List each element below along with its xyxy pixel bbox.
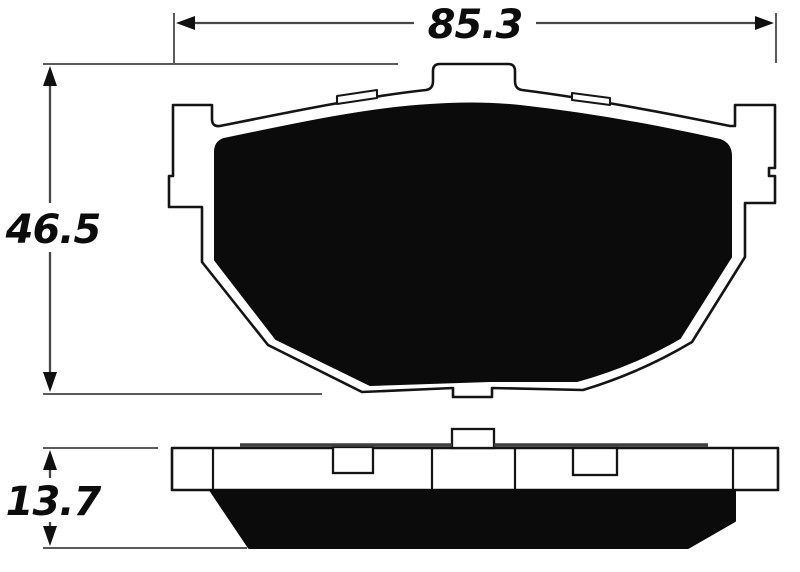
brake-pad-front-view — [169, 64, 775, 397]
width-dimension-label: 85.3 — [428, 2, 523, 48]
brake-pad-drawing: 85.3 46.5 13.7 — [0, 0, 800, 572]
brake-pad-edge-view — [172, 429, 778, 548]
edge-center-tab — [452, 429, 494, 448]
edge-backing-plate — [172, 448, 778, 490]
friction-material-front — [215, 104, 731, 385]
dimension-width: 85.3 — [174, 2, 776, 64]
thickness-dimension-label: 13.7 — [6, 479, 102, 525]
thickness-arrowhead-down — [43, 526, 57, 546]
width-arrowhead-right — [755, 16, 774, 30]
edge-slot-left — [333, 447, 373, 473]
height-dimension-label: 46.5 — [5, 207, 101, 253]
width-arrowhead-left — [176, 16, 195, 30]
thickness-arrowhead-up — [43, 450, 57, 470]
height-arrowhead-up — [43, 66, 57, 86]
edge-slot-right — [573, 448, 617, 475]
technical-drawing-canvas: 85.3 46.5 13.7 — [0, 0, 800, 572]
height-arrowhead-down — [43, 372, 57, 392]
friction-material-edge — [210, 490, 735, 548]
